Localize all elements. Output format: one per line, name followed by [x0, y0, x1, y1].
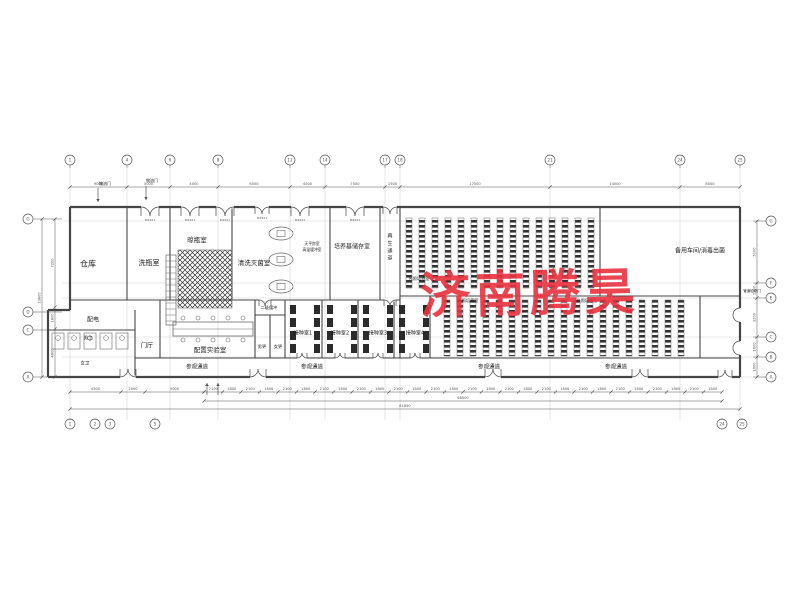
- dim-text: 5000: [170, 387, 180, 391]
- stool: [211, 338, 215, 342]
- floor-plan: 9000500040006000450075001500175001400080…: [0, 0, 800, 600]
- dim-text: 1800: [449, 387, 459, 391]
- clean-bench: [399, 331, 405, 340]
- dim-text: 2100: [283, 387, 293, 391]
- grid-bubble-label: 1: [69, 157, 72, 162]
- room-label: 男卫: [84, 336, 93, 342]
- clean-bench: [314, 318, 320, 327]
- door-tag: M1521: [350, 218, 360, 222]
- dim-text: 2100: [209, 387, 219, 391]
- grid-bubble-label: 21: [547, 157, 553, 162]
- dim-text: 1800: [634, 387, 644, 391]
- dim-text: 1800: [560, 387, 570, 391]
- watermark-text: 济南腾昊: [419, 252, 640, 329]
- room-label: 配置实验室: [194, 345, 227, 354]
- dim-text: 4500: [303, 182, 313, 186]
- clean-bench: [387, 331, 393, 340]
- bottle-rack: [166, 255, 176, 325]
- dim-text: 4300: [91, 387, 101, 391]
- clean-bench: [327, 318, 333, 327]
- clean-bench: [351, 331, 357, 340]
- room-label: 接种室4: [406, 330, 424, 337]
- grid-bubble-label: A: [770, 374, 773, 379]
- dim-text: 2100: [468, 387, 478, 391]
- grid-bubble-label: 12: [287, 157, 293, 162]
- grid-bubble-label: 24: [719, 421, 725, 426]
- dim-text: 2100: [320, 387, 330, 391]
- room-label: 接种室2: [331, 330, 349, 337]
- grid-bubble-label: 8: [217, 157, 220, 162]
- stool: [196, 316, 200, 320]
- dim-text: 1800: [375, 387, 385, 391]
- room-label: 参观通道: [605, 363, 628, 371]
- dim-text: 17500: [469, 182, 481, 186]
- clean-bench: [290, 305, 296, 314]
- door-tag: M1521: [145, 218, 155, 222]
- annotation-arrowhead: [144, 197, 147, 200]
- stool: [241, 316, 245, 320]
- dim-text: 2000: [128, 387, 138, 391]
- door-tag: M1521: [185, 218, 195, 222]
- dim-text: 2100: [431, 387, 441, 391]
- culture-rack: [652, 300, 658, 356]
- grid-bubble-label: 3: [109, 421, 112, 426]
- clean-bench: [314, 331, 320, 340]
- clean-bench: [351, 318, 357, 327]
- autoclave-door: [277, 257, 285, 263]
- culture-rack: [678, 300, 684, 356]
- grid-bubble-label: C: [27, 327, 30, 332]
- drying-area-hatch: [178, 250, 232, 308]
- room-label-vertical: 通: [387, 247, 392, 254]
- toilet-fixture: [56, 336, 61, 341]
- grid-bubble-label: 5: [154, 421, 157, 426]
- room-label: 物流门: [146, 177, 158, 183]
- room-label: 晾瓶室: [187, 235, 207, 244]
- door-tag: M1521: [220, 218, 230, 222]
- grid-bubble-label: 25: [737, 157, 743, 162]
- stool: [226, 338, 230, 342]
- room-label: 参观通道: [186, 363, 209, 371]
- door-tag: M1521: [295, 218, 305, 222]
- dim-text: 1800: [486, 387, 496, 391]
- room-label: 培养基储存室: [334, 243, 370, 251]
- dim-text: 7200: [51, 258, 55, 268]
- room-label: 仓库: [80, 259, 96, 269]
- room-label-vertical: 道: [387, 255, 392, 262]
- stool: [241, 338, 245, 342]
- autoclave: [269, 253, 293, 266]
- room-label-vertical: 再: [387, 234, 392, 240]
- grid-bubble-label: G: [26, 216, 29, 221]
- dim-text: 2100: [246, 387, 256, 391]
- clean-bench: [363, 305, 369, 314]
- grid-bubble-label: A: [27, 374, 30, 379]
- dim-text: 2100: [579, 387, 589, 391]
- dim-text: 1800: [597, 387, 607, 391]
- dim-text: 3200: [753, 312, 757, 322]
- dim-text: 4000: [189, 182, 199, 186]
- stool: [211, 316, 215, 320]
- dim-text: 1800: [301, 387, 311, 391]
- clean-bench: [399, 318, 405, 327]
- grid-bubble-label: C: [770, 334, 773, 339]
- dim-text: 2100: [653, 387, 663, 391]
- clean-bench: [387, 318, 393, 327]
- clean-bench: [351, 305, 357, 314]
- grid-bubble-label: B: [770, 354, 773, 359]
- annotation-arrowhead: [205, 383, 208, 386]
- toilet-fixture: [120, 336, 125, 341]
- room-label: 管道检修门: [743, 288, 761, 293]
- dim-text: 2100: [690, 387, 700, 391]
- room-label: 参观通道: [478, 363, 501, 371]
- grid-bubble-label: 6: [169, 157, 172, 162]
- clean-bench: [387, 344, 393, 353]
- grid-bubble-label: 17: [382, 157, 388, 162]
- toilet-fixture: [104, 336, 109, 341]
- grid-bubble-label: 2: [94, 421, 97, 426]
- room-label: 参观通道: [301, 363, 324, 371]
- grid-bubble-label: 25: [739, 421, 745, 426]
- clean-bench: [363, 318, 369, 327]
- clean-bench: [363, 344, 369, 353]
- stool: [181, 338, 185, 342]
- stool: [226, 316, 230, 320]
- room-label: 高温缓冲室: [303, 247, 322, 252]
- clean-bench: [387, 305, 393, 314]
- grid-bubble-label: D: [26, 309, 29, 314]
- dim-text: 1800: [338, 387, 348, 391]
- dim-text: 68500: [457, 396, 469, 400]
- annotation-arrowhead: [96, 199, 99, 202]
- clean-bench: [314, 305, 320, 314]
- clean-bench: [351, 344, 357, 353]
- dim-text: 1800: [227, 387, 237, 391]
- clean-bench: [327, 344, 333, 353]
- stool: [196, 338, 200, 342]
- grid-bubble-label: F: [770, 280, 773, 285]
- dim-text: 2100: [357, 387, 367, 391]
- grid-bubble-label: E: [770, 295, 773, 300]
- dim-text: 2100: [616, 387, 626, 391]
- dim-text: 14000: [609, 182, 621, 186]
- dim-text: 1800: [51, 313, 55, 323]
- room-label: 男更: [258, 344, 267, 350]
- dim-text: 1800: [708, 387, 718, 391]
- dim-text: 1800: [523, 387, 533, 391]
- dim-text: 5100: [753, 247, 757, 257]
- grid-bubble-label: 4: [126, 157, 129, 162]
- room-label: 接种室3: [369, 330, 387, 337]
- dim-text: 13800: [38, 292, 42, 304]
- stool: [181, 316, 185, 320]
- dim-text: 2100: [505, 387, 515, 391]
- grid-bubble-label: G: [769, 218, 772, 223]
- dim-text: 1600: [753, 342, 757, 352]
- dim-text: 8000: [705, 182, 715, 186]
- room-label-vertical: 生: [387, 240, 392, 247]
- dim-text: 1500: [388, 182, 398, 186]
- clean-bench: [290, 344, 296, 353]
- door-tag: M1521: [257, 216, 267, 220]
- dim-text: 1600: [753, 362, 757, 372]
- autoclave: [269, 227, 293, 240]
- annotation-arrowhead: [216, 383, 219, 386]
- room-label: 清洗灭菌室: [238, 258, 271, 267]
- room-label: 洗瓶室: [139, 258, 160, 267]
- dim-text: 6000: [249, 182, 259, 186]
- toilet-fixture: [72, 336, 77, 341]
- grid-bubble-label: 24: [677, 157, 683, 162]
- dim-text: 2100: [542, 387, 552, 391]
- clean-bench: [327, 305, 333, 314]
- autoclave-door: [277, 284, 285, 290]
- autoclave: [269, 280, 293, 293]
- room-label: 物流门: [99, 180, 111, 186]
- room-label: 备用车间/消毒出菌: [675, 247, 725, 255]
- grid-bubble-label: 1: [69, 421, 72, 426]
- dim-text: 1800: [264, 387, 274, 391]
- dim-text: 81850: [399, 404, 411, 408]
- autoclave-door: [277, 231, 285, 237]
- room-label: 门厅: [141, 342, 153, 350]
- room-label: 天平房室: [304, 241, 319, 246]
- room-label: 二级缓冲: [261, 304, 278, 311]
- clean-bench: [314, 344, 320, 353]
- blueprint-canvas: 9000500040006000450075001500175001400080…: [0, 0, 800, 600]
- clean-bench: [399, 305, 405, 314]
- room-label: 配电: [87, 316, 99, 324]
- culture-rack: [665, 300, 671, 356]
- room-label: 女卫: [81, 360, 90, 367]
- dim-text: 1800: [671, 387, 681, 391]
- clean-bench: [290, 318, 296, 327]
- grid-bubble-label: 14: [322, 157, 328, 162]
- dim-text: 7500: [350, 182, 360, 186]
- dim-text: 2100: [394, 387, 404, 391]
- dim-text: 1800: [412, 387, 422, 391]
- grid-bubble-label: 18: [397, 157, 403, 162]
- room-label: 接种室1: [294, 330, 312, 337]
- room-label: 女更: [274, 343, 283, 350]
- clean-bench: [399, 344, 405, 353]
- clean-bench: [423, 344, 429, 353]
